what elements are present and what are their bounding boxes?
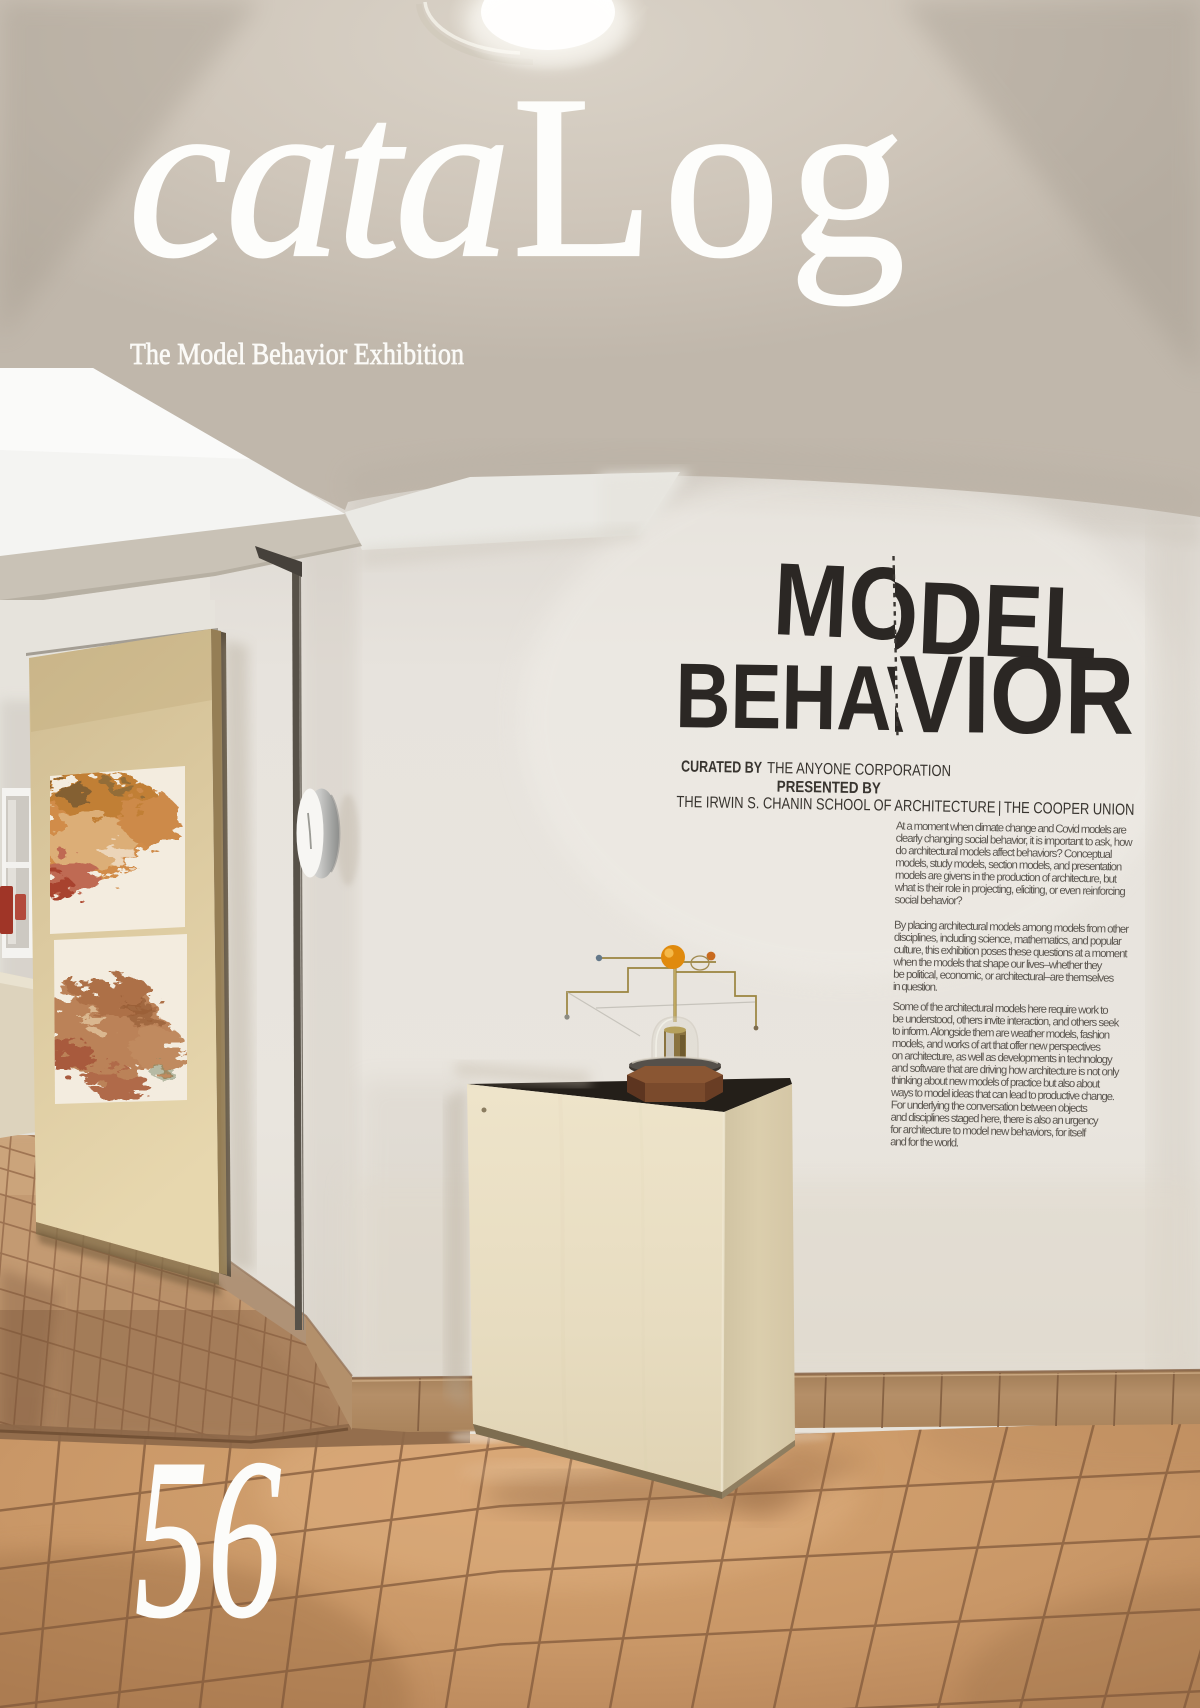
svg-text:Some of the architectural mode: Some of the architectural models here re… — [889, 1001, 1123, 1153]
svg-text:PRESENTED BY: PRESENTED BY — [777, 779, 882, 798]
svg-text:56: 56 — [135, 1413, 281, 1666]
svg-text:The Model Behavior Exhibition: The Model Behavior Exhibition — [130, 336, 464, 371]
svg-text:CURATED BY: CURATED BY — [681, 759, 763, 777]
svg-text:cataLog: cataLog — [128, 48, 914, 306]
svg-text:THE ANYONE CORPORATION: THE ANYONE CORPORATION — [767, 760, 951, 780]
